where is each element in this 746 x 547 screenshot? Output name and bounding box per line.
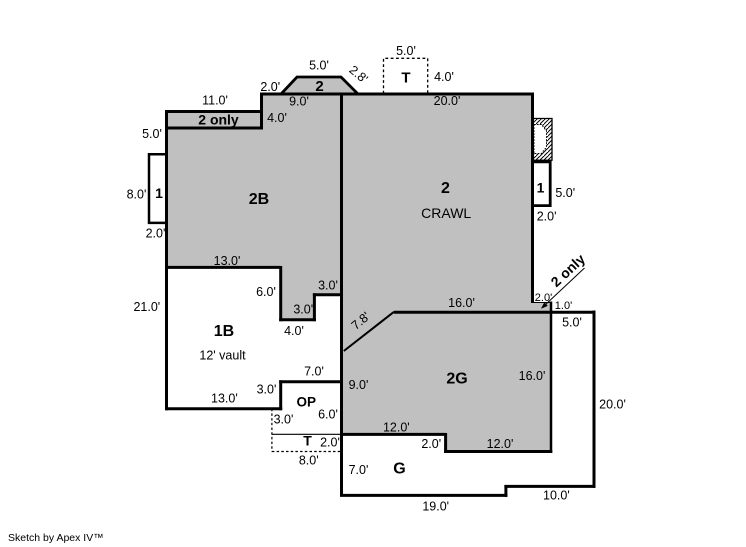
svg-text:4.0': 4.0' — [284, 324, 304, 338]
svg-text:2: 2 — [315, 78, 323, 95]
svg-text:2.0': 2.0' — [535, 292, 552, 304]
svg-text:2B: 2B — [249, 191, 269, 208]
svg-text:Sketch by Apex IV™: Sketch by Apex IV™ — [8, 532, 104, 544]
svg-text:3.0': 3.0' — [274, 413, 294, 427]
svg-text:5.0': 5.0' — [555, 186, 575, 200]
svg-text:3.0': 3.0' — [257, 383, 277, 397]
svg-text:4.0': 4.0' — [267, 111, 287, 125]
svg-text:3.0': 3.0' — [318, 279, 338, 293]
svg-text:7.0': 7.0' — [304, 364, 324, 378]
svg-text:5.0': 5.0' — [562, 316, 582, 330]
svg-text:2: 2 — [441, 180, 450, 197]
svg-text:2G: 2G — [446, 371, 467, 388]
svg-text:5.0': 5.0' — [396, 44, 416, 58]
svg-text:2.0': 2.0' — [146, 227, 166, 241]
svg-text:6.0': 6.0' — [318, 408, 338, 422]
svg-text:1B: 1B — [214, 323, 234, 340]
svg-text:G: G — [393, 461, 405, 478]
svg-text:8.0': 8.0' — [299, 454, 319, 468]
svg-text:2.0': 2.0' — [537, 209, 557, 223]
svg-text:7.0': 7.0' — [349, 463, 369, 477]
svg-text:T: T — [401, 69, 410, 86]
svg-text:19.0': 19.0' — [422, 499, 449, 513]
svg-text:21.0': 21.0' — [133, 300, 160, 314]
svg-text:OP: OP — [296, 394, 316, 409]
svg-text:16.0': 16.0' — [448, 296, 475, 310]
svg-text:8.0': 8.0' — [127, 188, 147, 202]
svg-text:12.0': 12.0' — [383, 421, 410, 435]
svg-text:12' vault: 12' vault — [199, 349, 246, 363]
svg-text:4.0': 4.0' — [434, 70, 454, 84]
svg-text:11.0': 11.0' — [202, 94, 228, 108]
svg-text:3.0': 3.0' — [293, 303, 313, 317]
svg-text:9.0': 9.0' — [349, 378, 369, 392]
svg-text:12.0': 12.0' — [487, 437, 514, 451]
svg-text:13.0': 13.0' — [214, 254, 241, 268]
svg-text:13.0': 13.0' — [211, 392, 238, 406]
svg-text:6.0': 6.0' — [256, 285, 276, 299]
svg-text:5.0': 5.0' — [142, 127, 162, 141]
svg-text:2.0': 2.0' — [320, 436, 340, 450]
svg-text:20.0': 20.0' — [599, 398, 626, 412]
svg-text:5.0': 5.0' — [309, 59, 329, 73]
svg-text:16.0': 16.0' — [519, 369, 546, 383]
svg-text:1: 1 — [155, 185, 163, 201]
svg-text:CRAWL: CRAWL — [421, 205, 471, 221]
svg-text:20.0': 20.0' — [434, 94, 461, 108]
svg-text:2 only: 2 only — [198, 112, 239, 128]
svg-text:T: T — [303, 433, 312, 449]
svg-text:9.0': 9.0' — [289, 94, 309, 108]
svg-text:1.0': 1.0' — [555, 300, 572, 312]
svg-text:1: 1 — [537, 179, 545, 195]
svg-text:10.0': 10.0' — [543, 489, 570, 503]
svg-text:2.0': 2.0' — [260, 80, 280, 94]
svg-text:2.0': 2.0' — [421, 437, 441, 451]
